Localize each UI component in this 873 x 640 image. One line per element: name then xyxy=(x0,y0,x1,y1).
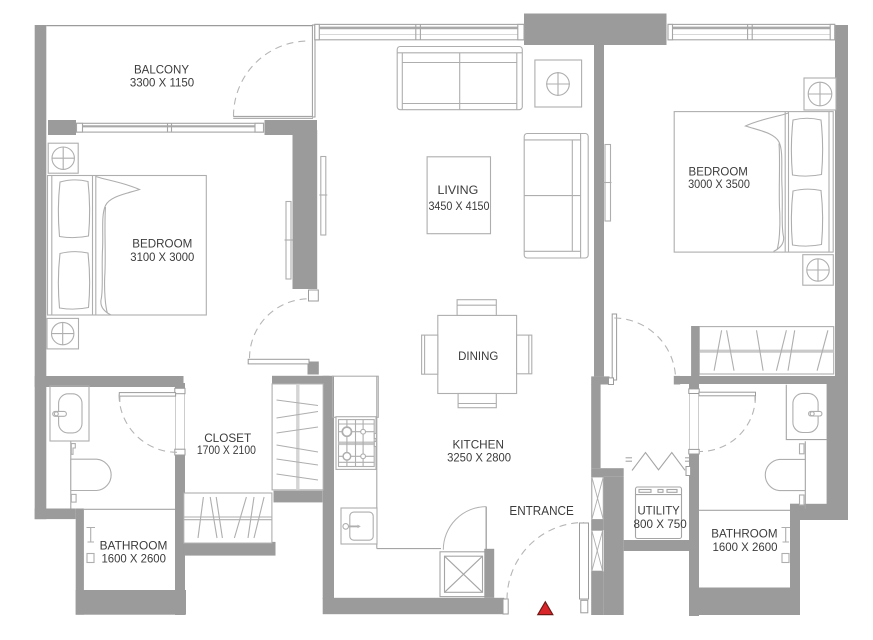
svg-text:3300 X 1150: 3300 X 1150 xyxy=(130,76,195,90)
svg-text:LIVING: LIVING xyxy=(438,183,479,197)
svg-text:BEDROOM: BEDROOM xyxy=(132,236,192,250)
svg-text:BALCONY: BALCONY xyxy=(134,63,189,77)
svg-text:DINING: DINING xyxy=(458,349,498,363)
svg-text:3250 X 2800: 3250 X 2800 xyxy=(447,451,511,465)
svg-text:3450 X 4150: 3450 X 4150 xyxy=(428,199,489,213)
svg-text:1600 X 2600: 1600 X 2600 xyxy=(713,540,778,554)
svg-text:KITCHEN: KITCHEN xyxy=(452,437,504,451)
svg-text:BATHROOM: BATHROOM xyxy=(711,526,777,540)
svg-text:800 X 750: 800 X 750 xyxy=(634,517,688,531)
svg-text:ENTRANCE: ENTRANCE xyxy=(509,503,574,518)
svg-text:3100 X 3000: 3100 X 3000 xyxy=(130,250,194,264)
svg-text:3000 X 3500: 3000 X 3500 xyxy=(688,177,750,191)
svg-text:1600 X 2600: 1600 X 2600 xyxy=(101,552,166,566)
svg-text:BATHROOM: BATHROOM xyxy=(100,538,168,552)
svg-text:UTILITY: UTILITY xyxy=(638,504,680,518)
svg-text:1700 X 2100: 1700 X 2100 xyxy=(197,443,256,457)
